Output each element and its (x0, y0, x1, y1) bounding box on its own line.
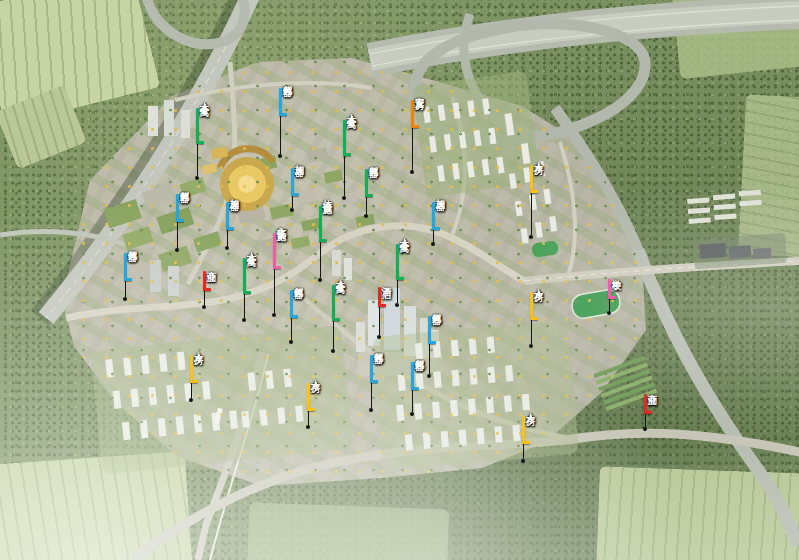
map-label-line (378, 287, 381, 305)
map-label-line (530, 292, 533, 317)
map-label-text: 文化设施 (277, 219, 287, 225)
map-label-line (307, 383, 310, 408)
map-label-anchor-dot (643, 427, 647, 431)
map-label-line (522, 416, 525, 441)
map-label-leader-line (366, 197, 367, 214)
map-label-leader-line (227, 230, 228, 246)
map-label-leader-line (412, 390, 413, 412)
map-label-text: 人才公寓 (247, 244, 257, 250)
map-label-anchor-dot (189, 398, 193, 402)
map-label-line (203, 271, 206, 289)
map-label-leader-line (280, 116, 281, 154)
map-label-leader-line (320, 242, 321, 278)
map-label-leader-line (379, 307, 380, 335)
map-label-text: 孵化器 (180, 183, 190, 188)
map-label-text: 孵化器 (415, 351, 425, 356)
map-label-text: 学校 (612, 271, 622, 274)
map-label-anchor-dot (529, 235, 533, 239)
map-label-anchor-dot (318, 278, 322, 282)
map-label-anchor-dot (175, 248, 179, 252)
map-label-text: 人才公寓 (336, 271, 346, 277)
map-label-line (396, 244, 399, 277)
map-label-leader-line (197, 144, 198, 176)
map-label-anchor-dot (395, 303, 399, 307)
map-label-leader-line (412, 128, 413, 170)
map-label-text: 商业 (207, 263, 217, 266)
map-label-text: 加速器 (230, 191, 240, 196)
map-label-anchor-dot (377, 335, 381, 339)
map-label-line (370, 355, 373, 380)
map-label-line (176, 194, 179, 219)
map-label-leader-line (429, 344, 430, 374)
map-label-line (196, 108, 199, 141)
map-label-line (290, 290, 293, 315)
map-label-anchor-dot (410, 412, 414, 416)
map-label-anchor-dot (242, 318, 246, 322)
map-label-line (608, 279, 611, 297)
map-label-text: 孵化器 (294, 279, 304, 284)
map-label-line (332, 285, 335, 318)
map-label-anchor-dot (123, 297, 127, 301)
map-label-leader-line (344, 156, 345, 196)
map-label-leader-line (531, 320, 532, 344)
map-label-anchor-dot (364, 214, 368, 218)
map-label-text: 人才房 (534, 154, 544, 159)
map-label-text: 安置房 (415, 89, 425, 94)
map-label-line (644, 394, 647, 412)
map-label-leader-line (125, 281, 126, 297)
map-label-leader-line (274, 269, 275, 313)
masterplan-aerial-rendering: 人才公寓孵化器人才公寓安置房人才房加速器孵化器孵化器加速器体育设施文化设施加速器… (0, 0, 799, 560)
map-label-text: 人才房 (534, 281, 544, 286)
map-label-text: 酒店 (382, 279, 392, 282)
map-label-leader-line (609, 299, 610, 311)
map-label-anchor-dot (289, 340, 293, 344)
map-label-line (291, 168, 294, 193)
map-label-anchor-dot (521, 459, 525, 463)
map-label-leader-line (433, 230, 434, 242)
map-label-line (428, 316, 431, 341)
map-label-line (411, 100, 414, 125)
map-label-text: 人才房 (194, 344, 204, 349)
map-label-line (190, 355, 193, 380)
map-label-anchor-dot (431, 242, 435, 246)
map-label-text: 孵化器 (369, 158, 379, 163)
map-label-anchor-dot (607, 311, 611, 315)
map-label-text: 商业 (648, 386, 658, 389)
map-label-anchor-dot (202, 305, 206, 309)
map-label-leader-line (333, 321, 334, 349)
map-label-text: 人才公寓 (200, 94, 210, 100)
map-label-line (432, 202, 435, 227)
map-label-leader-line (292, 196, 293, 208)
map-label-text: 孵化器 (432, 305, 442, 310)
map-label-anchor-dot (306, 425, 310, 429)
map-label-text: 孵化器 (283, 77, 293, 82)
map-label-text: 人才房 (526, 405, 536, 410)
map-label-anchor-dot (272, 313, 276, 317)
map-label-leader-line (523, 444, 524, 459)
map-label-line (411, 362, 414, 387)
map-label-text: 孵化器 (374, 344, 384, 349)
map-label-leader-line (291, 318, 292, 340)
map-label-leader-line (531, 193, 532, 235)
map-label-anchor-dot (290, 208, 294, 212)
map-label-leader-line (397, 280, 398, 303)
map-label-leader-line (371, 383, 372, 408)
map-label-anchor-dot (195, 176, 199, 180)
map-label-line (530, 165, 533, 190)
map-label-line (226, 202, 229, 227)
map-label-text: 人才公寓 (347, 106, 357, 112)
map-label-leader-line (244, 294, 245, 318)
map-label-text: 加速器 (436, 191, 446, 196)
map-label-text: 人才房 (311, 372, 321, 377)
map-label-text: 人才公寓 (400, 230, 410, 236)
map-label-anchor-dot (427, 374, 431, 378)
map-label-line (243, 258, 246, 291)
map-label-line (365, 169, 368, 194)
map-label-text: 加速器 (295, 157, 305, 162)
map-label-leader-line (308, 411, 309, 425)
map-label-leader-line (645, 414, 646, 427)
map-label-anchor-dot (331, 349, 335, 353)
map-label-text: 体育设施 (323, 192, 333, 198)
map-label-anchor-dot (225, 246, 229, 250)
map-labels: 人才公寓孵化器人才公寓安置房人才房加速器孵化器孵化器加速器体育设施文化设施加速器… (0, 0, 799, 560)
map-label-line (279, 88, 282, 113)
map-label-line (343, 120, 346, 153)
map-label-anchor-dot (410, 170, 414, 174)
map-label-leader-line (177, 222, 178, 248)
map-label-text: 孵化器 (128, 242, 138, 247)
map-label-leader-line (191, 383, 192, 398)
map-label-anchor-dot (342, 196, 346, 200)
map-label-anchor-dot (369, 408, 373, 412)
map-label-leader-line (204, 291, 205, 305)
map-label-line (319, 206, 322, 239)
map-label-anchor-dot (529, 344, 533, 348)
map-label-line (124, 253, 127, 278)
map-label-line (273, 233, 276, 266)
map-label-anchor-dot (278, 154, 282, 158)
